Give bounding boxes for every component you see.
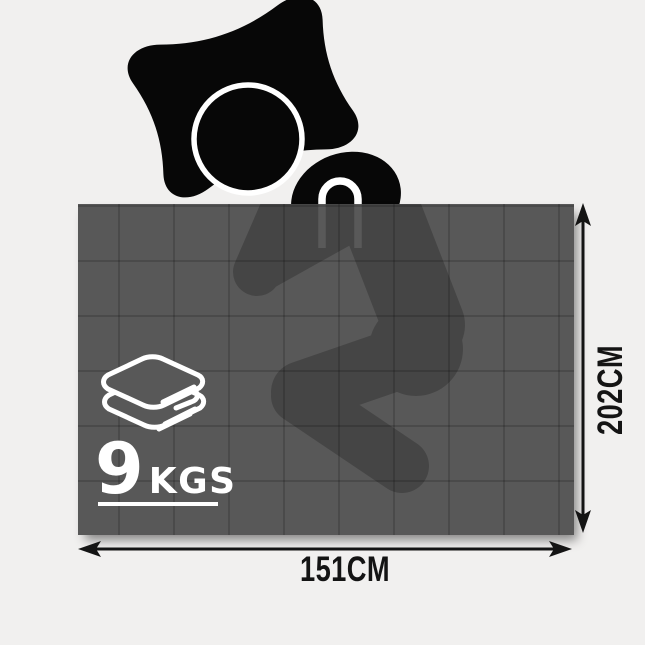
blanket-panel: 9 KGS <box>78 204 574 535</box>
weighted-blanket-infographic: 9 KGS 202CM 151CM <box>0 0 645 645</box>
width-dimension-label: 151CM <box>300 550 390 590</box>
weight-unit: KGS <box>149 464 237 500</box>
weight-number: 9 <box>95 434 144 504</box>
height-dimension-label: 202CM <box>591 345 631 435</box>
weight-underline <box>98 502 218 506</box>
head-icon <box>194 85 302 193</box>
folded-blankets-stack-icon <box>96 340 210 432</box>
weight-label: 9 KGS <box>95 434 237 504</box>
